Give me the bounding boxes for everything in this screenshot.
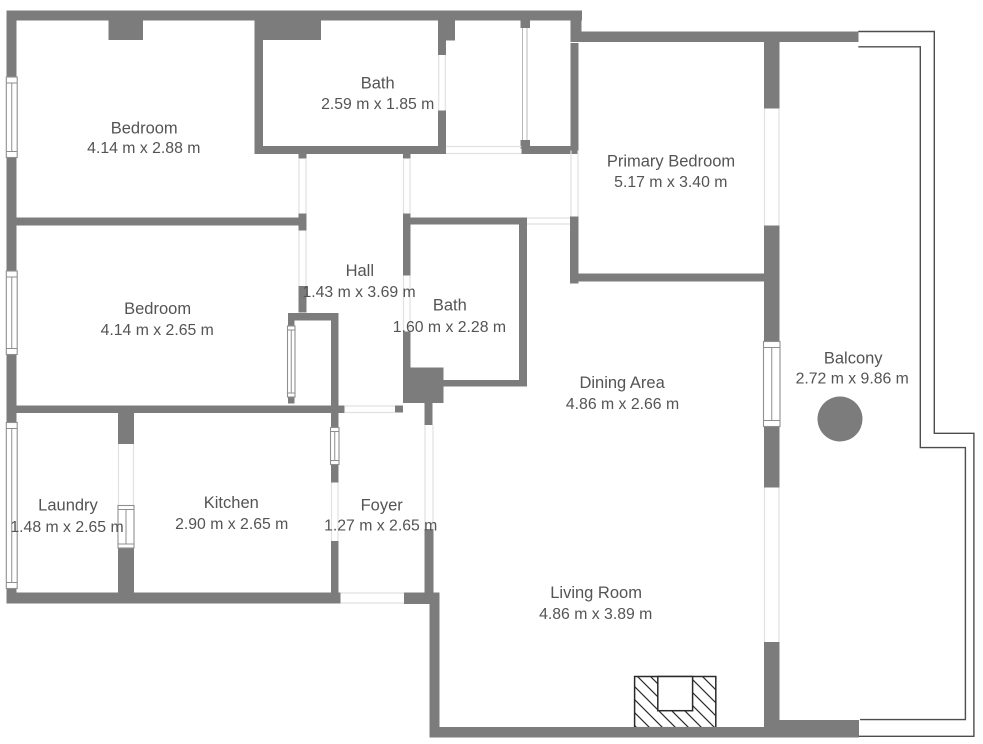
svg-text:Bath: Bath [361, 75, 395, 93]
svg-text:Laundry: Laundry [38, 497, 98, 515]
svg-text:Living Room: Living Room [550, 584, 642, 602]
svg-text:1.60 m x 2.28 m: 1.60 m x 2.28 m [393, 319, 506, 336]
svg-text:4.14 m x 2.65 m: 4.14 m x 2.65 m [101, 322, 214, 339]
svg-text:Bath: Bath [433, 297, 467, 315]
svg-text:Balcony: Balcony [824, 350, 883, 368]
svg-text:1.43 m x 3.69 m: 1.43 m x 3.69 m [302, 284, 415, 301]
svg-text:1.27 m x 2.65 m: 1.27 m x 2.65 m [324, 518, 437, 535]
svg-text:4.14 m x 2.88 m: 4.14 m x 2.88 m [87, 140, 200, 157]
svg-text:1.48 m x 2.65 m: 1.48 m x 2.65 m [10, 519, 123, 536]
svg-text:5.17 m x 3.40 m: 5.17 m x 3.40 m [614, 174, 727, 191]
svg-text:Bedroom: Bedroom [111, 120, 178, 138]
svg-text:4.86 m x 3.89 m: 4.86 m x 3.89 m [539, 606, 652, 623]
svg-text:Primary Bedroom: Primary Bedroom [607, 152, 735, 170]
svg-text:Foyer: Foyer [361, 496, 404, 514]
svg-text:4.86 m x 2.66 m: 4.86 m x 2.66 m [566, 396, 679, 413]
svg-text:2.90 m x 2.65 m: 2.90 m x 2.65 m [175, 516, 288, 533]
svg-text:Bedroom: Bedroom [124, 300, 191, 318]
svg-text:2.72 m x 9.86 m: 2.72 m x 9.86 m [796, 370, 909, 387]
svg-text:Kitchen: Kitchen [204, 494, 259, 512]
svg-text:2.59 m x 1.85 m: 2.59 m x 1.85 m [321, 96, 434, 113]
svg-text:Hall: Hall [346, 262, 374, 280]
svg-text:Dining Area: Dining Area [579, 374, 665, 392]
